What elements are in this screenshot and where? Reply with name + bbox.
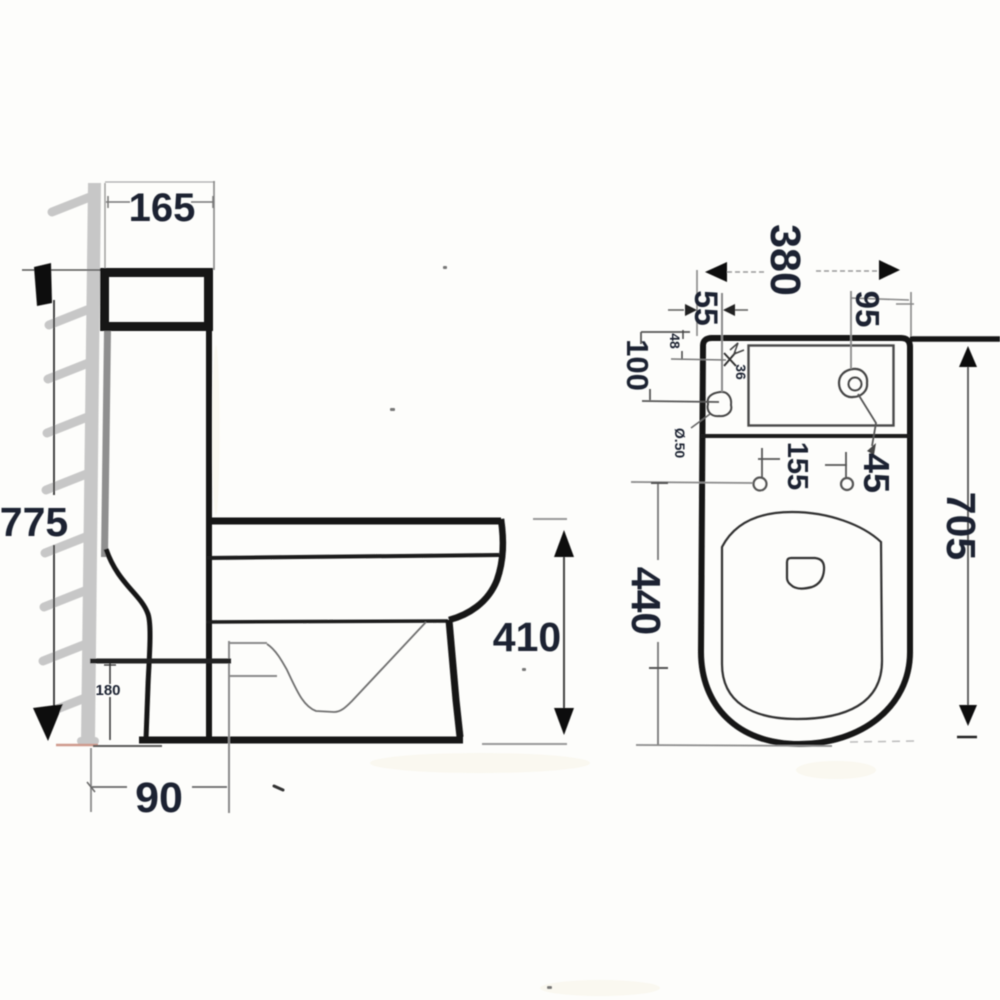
svg-text:775: 775 [0, 499, 68, 545]
svg-text:45: 45 [856, 453, 897, 493]
svg-text:48: 48 [667, 333, 683, 349]
svg-text:440: 440 [623, 567, 669, 635]
svg-text:410: 410 [493, 614, 561, 660]
svg-text:36: 36 [733, 364, 749, 380]
svg-text:165: 165 [129, 186, 196, 230]
svg-text:155: 155 [781, 442, 813, 490]
svg-text:90: 90 [135, 774, 183, 822]
svg-text:Ø.50: Ø.50 [672, 428, 688, 459]
svg-text:95: 95 [849, 291, 886, 328]
svg-text:180: 180 [95, 682, 120, 699]
svg-text:705: 705 [938, 492, 984, 560]
svg-text:100: 100 [620, 339, 655, 391]
svg-text:55: 55 [688, 290, 724, 326]
svg-text:380: 380 [761, 224, 809, 296]
